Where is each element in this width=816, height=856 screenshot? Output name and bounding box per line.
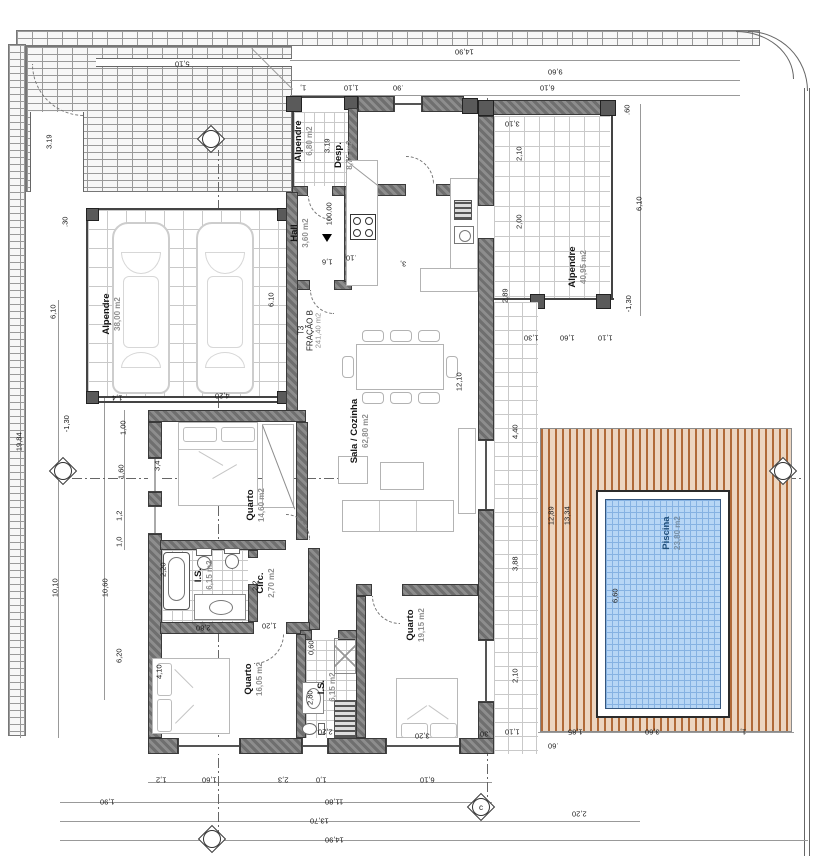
dimension-label: 10,60 — [102, 578, 110, 597]
toilet-tank — [196, 548, 212, 556]
dimension-label: 1,90 — [100, 798, 115, 806]
carport-edge — [86, 210, 88, 398]
bed — [396, 678, 458, 738]
dimension-label: 12,89 — [548, 506, 556, 525]
dimension-label: 2,10 — [516, 146, 524, 161]
street-corner-inner — [736, 31, 794, 79]
chair — [362, 330, 384, 342]
bed-fold — [179, 449, 257, 450]
marker-circle — [202, 130, 220, 148]
dimension-label: 11,80 — [325, 798, 343, 806]
dimension-label: 1, — [300, 84, 306, 92]
room-label-bedroom3: Quarto 19,15 m2 — [406, 585, 426, 665]
carport-post — [86, 391, 99, 404]
burner — [365, 217, 373, 225]
window — [394, 96, 422, 112]
dimension-label: 3.19 — [324, 138, 332, 153]
dimension-label: 2,20 — [572, 810, 587, 818]
dimension-label: 2,80 — [196, 624, 211, 632]
appliance-icon — [454, 200, 472, 220]
room-area: 3,60 m2 — [301, 218, 310, 247]
dimension-label: 1,60 — [118, 464, 126, 479]
carport-post — [86, 208, 99, 221]
armchair — [338, 456, 368, 484]
bed-fold — [199, 451, 224, 466]
dimension-label: 19,84 — [16, 432, 24, 451]
section-marker-icon — [196, 124, 226, 154]
wall-segment — [402, 584, 478, 596]
car-icon — [196, 222, 254, 394]
dimension-label: 6.10 — [268, 292, 276, 307]
dimension-label: 14,90 — [455, 48, 474, 56]
dimension-label: 1,60 — [202, 776, 217, 784]
bedroom-door-arc — [254, 634, 284, 664]
dimension-label: 4,40 — [512, 424, 520, 439]
chair — [390, 392, 412, 404]
dimension-label: -1,30 — [63, 415, 71, 432]
wall-post — [596, 294, 611, 309]
wall-segment — [358, 96, 394, 112]
pillow — [157, 699, 172, 732]
dimension-label: 1,0 — [115, 537, 123, 547]
dimension-label: 2,80 — [307, 690, 315, 705]
section-marker-icon: c — [466, 792, 496, 822]
wardrobe — [262, 424, 294, 508]
dimension-label: 3,10 — [505, 120, 520, 128]
site-boundary-right — [804, 88, 810, 856]
dimension-label: 2,20 — [318, 728, 333, 736]
wall-segment — [286, 192, 298, 418]
wall-segment — [148, 738, 178, 754]
wall-segment — [148, 492, 162, 506]
dimension-label: 6,20 — [116, 648, 124, 663]
dimension-label: 1,10 — [505, 728, 520, 736]
vanity — [194, 594, 246, 620]
bed-fold — [407, 705, 427, 720]
dimension-label: 0,60 — [308, 640, 316, 655]
room-area: 16,05 m2 — [255, 662, 264, 696]
chair — [342, 356, 354, 378]
dimension-label: 2,10 — [512, 668, 520, 683]
car-rear-window — [121, 352, 161, 368]
wall-segment — [478, 238, 494, 440]
toilet-icon — [196, 548, 212, 572]
wing-porch-floor — [494, 116, 610, 298]
dim-line — [60, 840, 808, 841]
section-marker-icon — [197, 824, 227, 854]
sofa — [342, 500, 454, 532]
washbasin-icon — [209, 600, 233, 615]
pantry-door-arc — [406, 156, 434, 184]
wardrobe-line — [262, 425, 295, 509]
car-windshield — [121, 252, 161, 274]
bidet-icon — [224, 548, 240, 572]
dimension-label: 2,3 — [278, 776, 288, 784]
window — [478, 640, 494, 702]
dimension-label: 4,10 — [156, 664, 164, 679]
bed-fold — [175, 705, 194, 724]
cushion-line — [416, 501, 417, 531]
burner — [365, 229, 373, 237]
dim-line — [20, 46, 21, 738]
shower-icon — [334, 638, 356, 674]
window — [478, 440, 494, 510]
wall-post — [286, 96, 302, 112]
car-roof — [207, 276, 243, 348]
dimension-label: 10,10 — [52, 578, 60, 597]
toilet-bowl — [197, 556, 211, 570]
marker-circle — [203, 830, 221, 848]
dimension-label: 3,60 — [645, 728, 660, 736]
door-opening — [478, 206, 494, 238]
dim-line — [290, 60, 740, 61]
cushion-line — [379, 501, 380, 531]
bed-fold — [212, 464, 237, 479]
dimension-label: 1,2 — [156, 776, 166, 784]
tv-cabinet — [458, 428, 476, 514]
dimension-label: 13,70 — [310, 817, 329, 825]
dimension-label: 13,34 — [564, 506, 572, 525]
pillow — [221, 427, 255, 442]
dimension-label: 6,10 — [420, 776, 435, 784]
dimension-label: 3,88 — [512, 556, 520, 571]
pillow — [183, 427, 217, 442]
dimension-label: 14,90 — [325, 836, 344, 844]
dimension-label: 1,10 — [344, 84, 359, 92]
dimension-label: 1,0 — [316, 776, 326, 784]
wall-post — [462, 98, 478, 114]
room-name: Sala / Cozinha — [350, 399, 361, 463]
dimension-label: .90 — [393, 84, 403, 92]
wall-segment — [240, 738, 302, 754]
wall-post — [478, 100, 494, 116]
room-area: 19,15 m2 — [417, 608, 426, 642]
car-icon — [112, 222, 170, 394]
dim-line — [60, 821, 640, 822]
entry-path — [30, 112, 84, 192]
marker-circle: c — [472, 798, 490, 816]
dim-line — [60, 802, 492, 803]
window — [178, 738, 240, 754]
dimension-label: 2,2 — [251, 581, 259, 591]
burner — [353, 229, 361, 237]
window — [148, 506, 162, 534]
bidet-bowl — [225, 554, 239, 569]
site-wall-left — [8, 44, 26, 736]
chair — [390, 330, 412, 342]
dimension-label: 1, — [740, 728, 746, 736]
dimension-label: 3,20 — [415, 732, 430, 740]
dimension-label: 1,4 — [112, 394, 122, 402]
dimension-label: 6,60 — [612, 588, 620, 603]
sink-icon — [454, 226, 474, 244]
dimension-label: 6,10 — [636, 196, 644, 211]
wall-segment — [148, 422, 162, 458]
bed — [178, 422, 258, 506]
dimension-label: 1,00 — [120, 420, 128, 435]
dimension-label: .10 — [346, 254, 356, 262]
marker-circle — [774, 462, 792, 480]
wall-segment — [160, 540, 286, 550]
dimension-label: 4,20 — [215, 392, 230, 400]
dimension-label: 3, — [400, 260, 406, 268]
coffee-table — [380, 462, 424, 490]
window — [302, 738, 328, 754]
dimension-label: 1,2 — [115, 511, 123, 521]
car-rear-window — [205, 352, 245, 368]
wall-segment — [248, 550, 258, 558]
dimension-label: .60 — [548, 742, 558, 750]
fraction-name: FRAÇÃO B — [306, 310, 315, 351]
wall-segment — [460, 738, 494, 754]
section-marker-icon — [768, 456, 798, 486]
wall-segment — [356, 596, 366, 738]
level-mark-icon — [322, 234, 332, 242]
burner — [353, 217, 361, 225]
dimension-label: .60 — [623, 105, 631, 115]
dimension-label: 1,6 — [322, 258, 332, 266]
dining-table — [356, 344, 444, 390]
dimension-label: -1,30 — [625, 295, 633, 312]
dimension-label: 6,10 — [50, 304, 58, 319]
wall-post — [600, 100, 616, 116]
dim-line — [104, 380, 105, 700]
dim-line — [58, 300, 59, 738]
room-name: Quarto — [406, 609, 417, 640]
shower-tray — [334, 700, 356, 738]
wall-segment — [308, 548, 320, 630]
porch-edge — [611, 116, 613, 300]
kitchen-counter — [450, 178, 478, 272]
pillow — [430, 723, 457, 738]
stove-icon — [350, 214, 376, 240]
dimension-label: 2,00 — [516, 214, 524, 229]
wall-segment — [422, 96, 464, 112]
bedroom-door-arc — [372, 596, 400, 624]
wall-segment — [356, 584, 372, 596]
dimension-label: .30 — [61, 217, 69, 227]
bed-fold — [428, 705, 448, 720]
bathtub-inner — [168, 557, 185, 601]
dimension-label: 9,60 — [548, 68, 563, 76]
pool-water — [605, 499, 721, 709]
porch-floor — [294, 112, 348, 186]
site-wall-top — [16, 30, 760, 46]
walkway-floor — [494, 302, 538, 754]
chair — [362, 392, 384, 404]
fraction-area: 241,40 m2 — [315, 313, 324, 348]
room-name: Quarto — [244, 663, 255, 694]
car-roof — [123, 276, 159, 348]
wall-segment — [328, 738, 386, 754]
dimension-label: .30 — [480, 730, 490, 738]
level-mark-value: 100.00 — [326, 202, 334, 225]
dimension-label: 5,10 — [175, 60, 190, 68]
dimension-label: 1,20 — [262, 622, 277, 630]
chair — [418, 392, 440, 404]
chair — [418, 330, 440, 342]
hall-door-arc — [310, 290, 334, 314]
dimension-label: 2,89 — [502, 288, 510, 303]
car-windshield — [205, 252, 245, 274]
wall-segment — [148, 410, 306, 422]
toilet-bowl — [302, 723, 317, 735]
dimension-label: 2,20 — [160, 562, 168, 577]
dimension-label: 1,60 — [560, 334, 575, 342]
carport-edge — [86, 208, 278, 210]
floor-plan: Alpendre 38,00 m2 Alpendre 6,80 m2 Desp.… — [0, 0, 816, 856]
marker-circle — [54, 462, 72, 480]
sink-bowl — [459, 230, 471, 242]
wall-segment — [478, 100, 616, 115]
bathtub-icon — [163, 552, 190, 610]
dimension-label: 12,10 — [456, 372, 464, 391]
wall-segment — [478, 116, 494, 206]
dimension-label: 1,10 — [598, 334, 613, 342]
section-marker-icon — [48, 456, 78, 486]
dimension-label: 6,10 — [540, 84, 555, 92]
bed — [152, 658, 230, 734]
dim-line — [290, 80, 740, 81]
dimension-label: 3,4 — [153, 461, 161, 471]
dimension-label: 1,30 — [524, 334, 539, 342]
dimension-label: 1,85 — [568, 728, 583, 736]
dimension-label: 3.19 — [46, 134, 54, 149]
bed-fold — [174, 669, 193, 688]
room-area: 62,80 m2 — [361, 414, 370, 448]
kitchen-island — [420, 268, 478, 292]
wall-segment — [478, 510, 494, 640]
room-area: 2,70 m2 — [267, 568, 276, 597]
porch-edge — [300, 96, 344, 98]
